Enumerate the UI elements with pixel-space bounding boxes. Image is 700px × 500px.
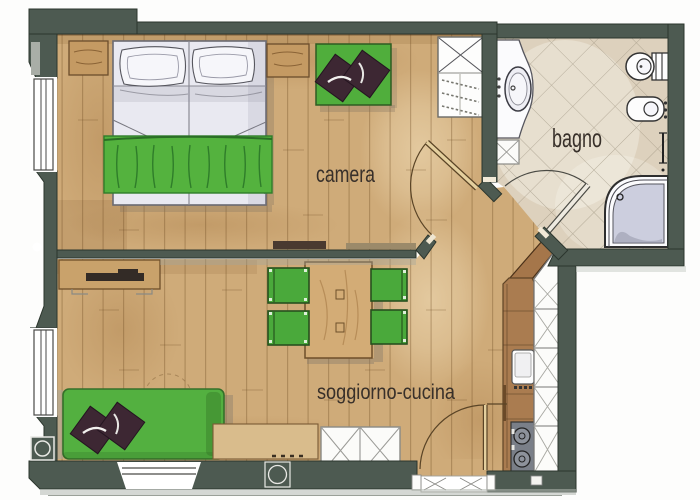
- svg-text:camera: camera: [316, 161, 375, 187]
- svg-text:bagno: bagno: [552, 123, 602, 153]
- svg-text:soggiorno-cucina: soggiorno-cucina: [317, 380, 455, 404]
